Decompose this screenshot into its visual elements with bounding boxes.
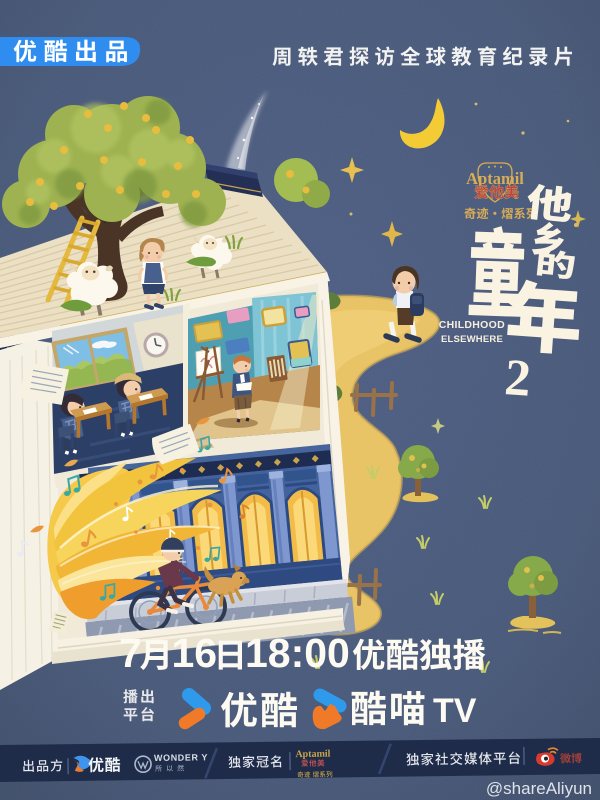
svg-text:CHILDHOOD: CHILDHOOD (439, 319, 505, 331)
svg-text:Aptamil: Aptamil (295, 749, 330, 760)
svg-text:TV: TV (433, 692, 477, 730)
svg-text:@shareAliyun: @shareAliyun (486, 779, 592, 798)
svg-text:18:00: 18:00 (245, 630, 350, 676)
svg-text:s: s (514, 195, 517, 201)
svg-text:7: 7 (119, 630, 142, 676)
svg-text:ELSEWHERE: ELSEWHERE (441, 334, 503, 345)
svg-text:16: 16 (172, 630, 218, 676)
svg-text:WONDER Y: WONDER Y (154, 752, 208, 763)
svg-text:2: 2 (503, 349, 533, 408)
